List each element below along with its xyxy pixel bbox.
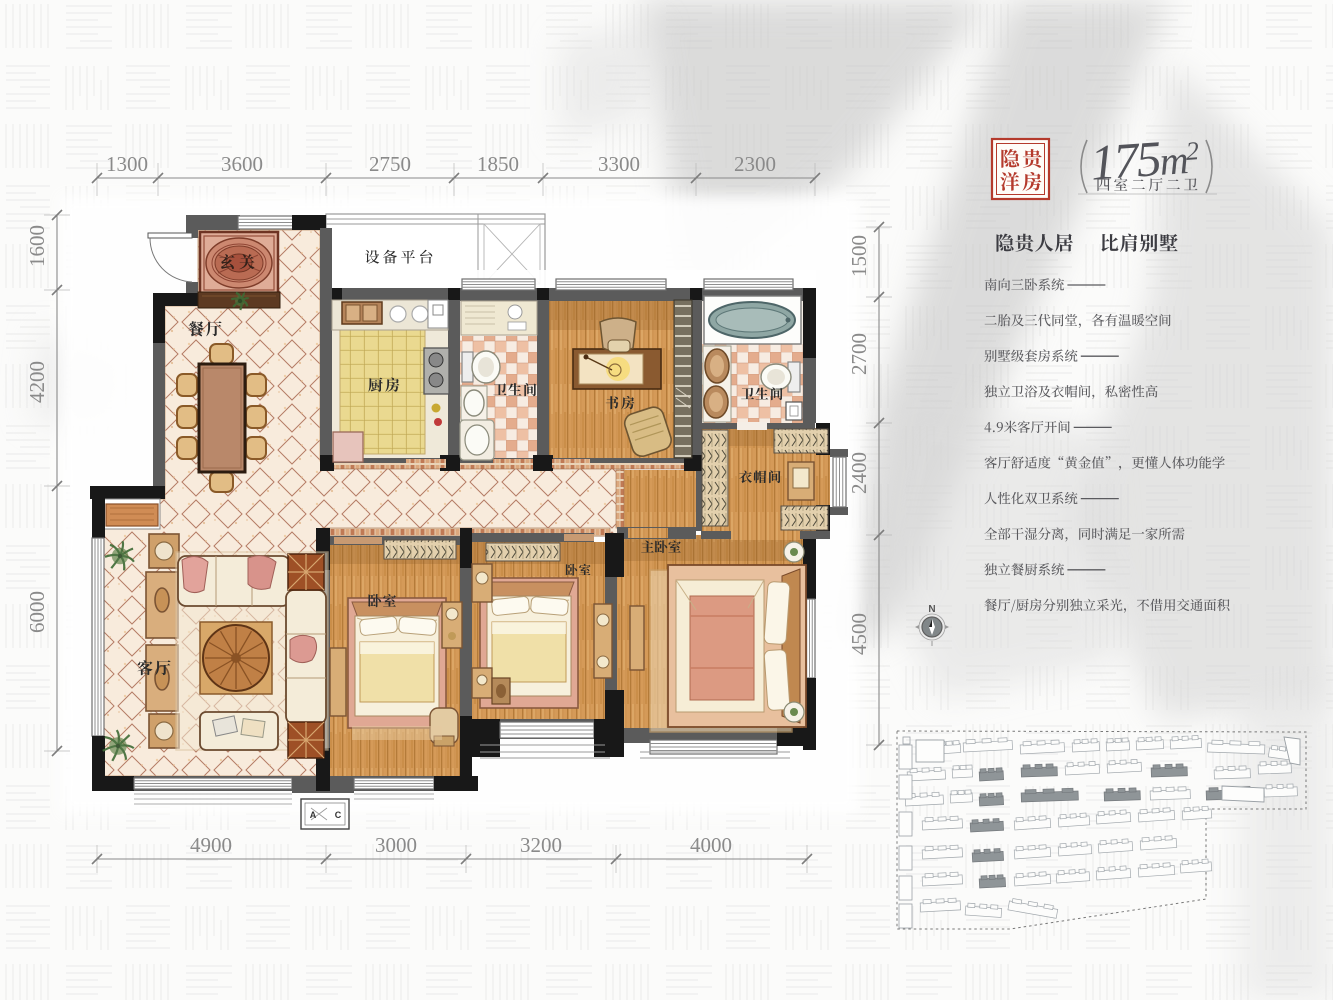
svg-text:4900: 4900: [190, 833, 232, 857]
svg-text:3000: 3000: [375, 833, 417, 857]
svg-text:1300: 1300: [106, 152, 148, 176]
svg-text:2300: 2300: [734, 152, 776, 176]
svg-text:2400: 2400: [847, 452, 871, 494]
svg-text:3200: 3200: [520, 833, 562, 857]
svg-text:C: C: [335, 810, 342, 820]
svg-text:4200: 4200: [25, 361, 49, 403]
svg-text:2700: 2700: [847, 333, 871, 375]
svg-text:A: A: [310, 810, 317, 820]
svg-text:4500: 4500: [847, 613, 871, 655]
svg-text:3600: 3600: [221, 152, 263, 176]
svg-text:1850: 1850: [477, 152, 519, 176]
svg-text:6000: 6000: [25, 591, 49, 633]
svg-text:N: N: [928, 604, 935, 615]
svg-text:1600: 1600: [25, 225, 49, 267]
svg-text:4000: 4000: [690, 833, 732, 857]
svg-text:2750: 2750: [369, 152, 411, 176]
svg-text:175m2: 175m2: [1089, 127, 1202, 190]
svg-text:3300: 3300: [598, 152, 640, 176]
svg-text:1500: 1500: [847, 235, 871, 277]
